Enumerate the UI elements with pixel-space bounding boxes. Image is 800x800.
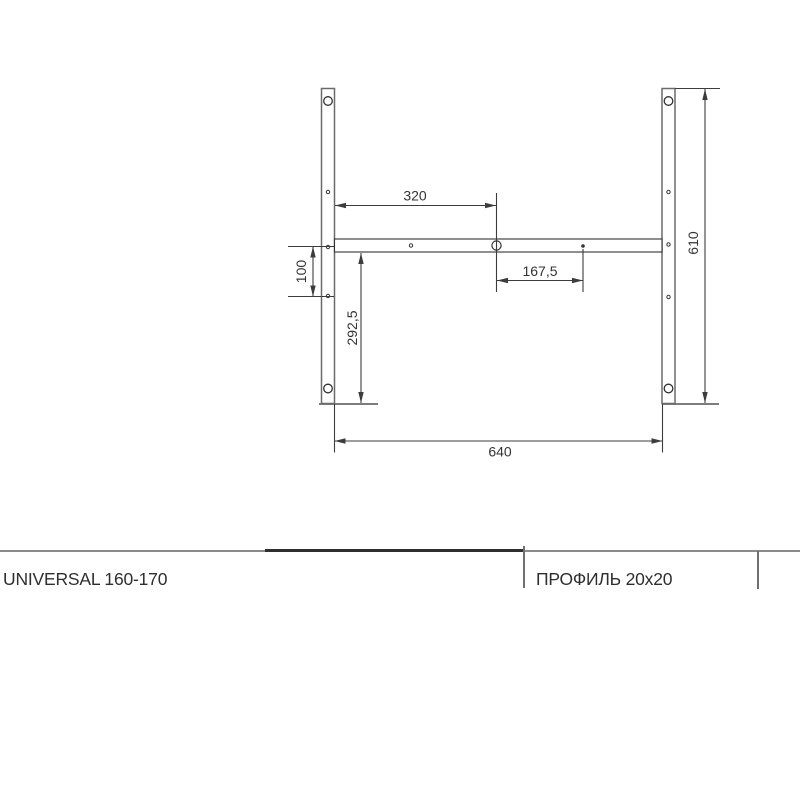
titleblock-rule-center [265, 549, 523, 552]
arrow-left-icon [497, 278, 508, 283]
mounting-hole-icon [324, 97, 333, 106]
frame-dimension-drawing: 320 167,5 100 292,5 610 [0, 0, 800, 545]
arrow-left-icon [335, 438, 346, 443]
small-hole-icon [409, 244, 412, 247]
titleblock-divider [523, 546, 525, 588]
arrow-right-icon [652, 438, 663, 443]
mounting-hole-icon [664, 384, 673, 393]
dimension-label-100: 100 [293, 260, 309, 284]
dimension-label-292-5: 292,5 [344, 310, 360, 345]
titleblock-rule-left [0, 550, 265, 552]
arrow-up-icon [310, 247, 315, 258]
drawing-page: 320 167,5 100 292,5 610 [0, 0, 800, 800]
small-hole-icon [667, 190, 670, 193]
arrow-right-icon [485, 203, 496, 208]
profile-spec-label: ПРОФИЛЬ 20x20 [536, 569, 672, 590]
arrow-down-icon [358, 392, 363, 403]
titleblock-divider [757, 551, 759, 589]
arrow-left-icon [335, 203, 346, 208]
hole-center-dot [581, 244, 585, 248]
arrow-down-icon [310, 286, 315, 297]
dimension-label-167-5: 167,5 [522, 263, 557, 279]
mounting-hole-icon [324, 384, 333, 393]
dimension-label-640: 640 [488, 444, 512, 460]
mounting-hole-icon [664, 97, 673, 106]
dimension-label-320: 320 [403, 188, 427, 204]
small-hole-icon [667, 243, 670, 246]
dimension-label-610: 610 [685, 231, 701, 255]
model-name-label: UNIVERSAL 160-170 [3, 569, 167, 590]
small-hole-icon [326, 190, 329, 193]
arrow-down-icon [702, 392, 707, 403]
arrow-right-icon [572, 278, 583, 283]
arrow-up-icon [702, 89, 707, 100]
small-hole-icon [667, 295, 670, 298]
arrow-up-icon [358, 253, 363, 264]
